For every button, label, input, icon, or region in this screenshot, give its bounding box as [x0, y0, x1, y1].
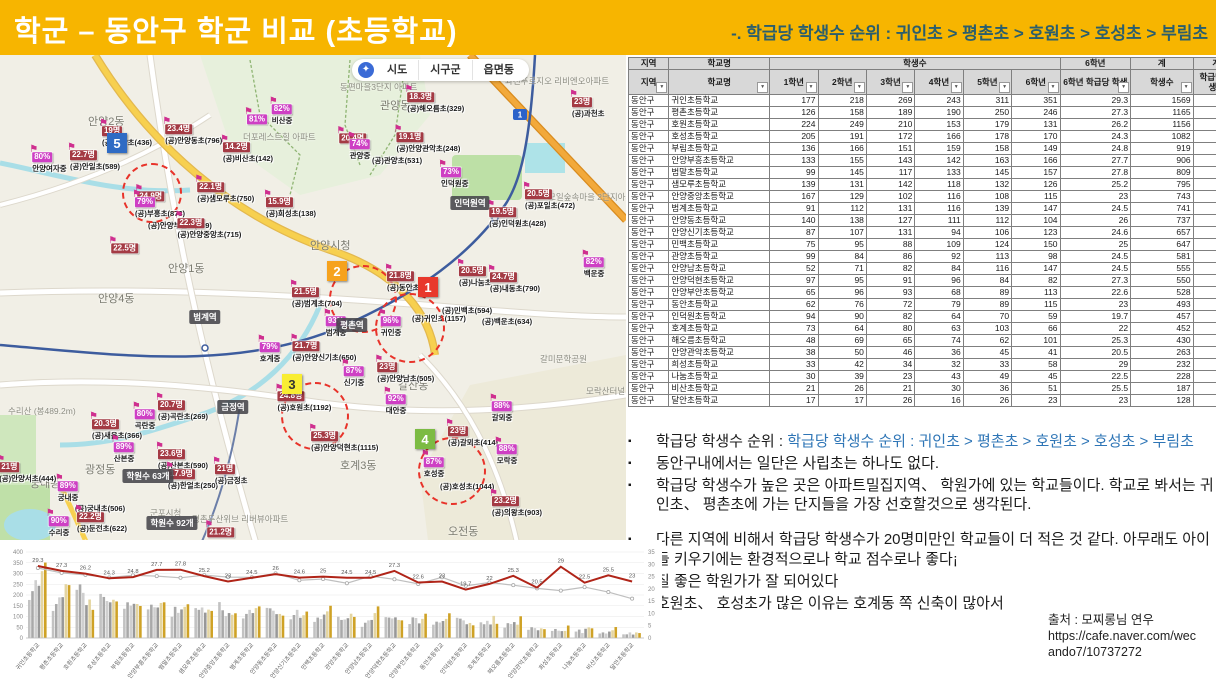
note-item: 질 좋은 학원가가 잘 되어있다: [628, 572, 1214, 592]
marker-school-name: 관양중: [350, 150, 371, 161]
cell-value: 246: [1012, 107, 1060, 119]
filter-button[interactable]: ▼: [1181, 82, 1192, 93]
map-marker[interactable]: ⚑23.4명(공)안양동초(796): [165, 118, 222, 146]
cell-value: 51: [1012, 383, 1060, 395]
header-cell: 4학년▼: [915, 70, 963, 95]
bar-2학년: [364, 623, 367, 638]
marker-school-name: (공)내동초(790): [490, 283, 540, 294]
cell-value: 84: [963, 275, 1011, 287]
cell-value: 26.2: [1060, 119, 1131, 131]
school-table-grid: 지역학교명학생수6학년계계지역▼학교명▼1학년▼2학년▼3학년▼4학년▼5학년▼…: [628, 57, 1216, 407]
bar-1학년: [622, 634, 625, 638]
filter-button[interactable]: ▼: [1048, 82, 1059, 93]
x-axis-label: 동안초등학교: [418, 641, 446, 672]
cell-value: 151: [866, 143, 914, 155]
bar-4학년: [632, 635, 635, 638]
map-marker[interactable]: ⚑92%대안중: [386, 388, 407, 416]
header-cell: 지역▼: [629, 70, 669, 95]
cell-value: 123: [1012, 227, 1060, 239]
marker-value: 23.2명: [492, 496, 519, 506]
bar-1학년: [361, 627, 364, 638]
data-label: 25.5: [603, 567, 614, 573]
map-control-1[interactable]: 시구군: [418, 60, 471, 80]
marker-value: 21.7명: [292, 341, 319, 351]
map-control-2[interactable]: 읍면동: [472, 60, 525, 80]
cell-value: 457: [1131, 311, 1194, 323]
map-marker[interactable]: ⚑19.1명(공)안양관악초(248): [396, 126, 460, 154]
line-marker: [298, 579, 301, 582]
cell-value: 647: [1131, 239, 1194, 251]
cell-value: 147: [1012, 263, 1060, 275]
bar-4학년: [347, 618, 350, 638]
cell-value: 210: [866, 119, 914, 131]
filter-button[interactable]: ▼: [1118, 82, 1129, 93]
bar-5학년: [587, 627, 590, 638]
bar-3학년: [58, 597, 61, 638]
cell-value: 1082: [1131, 131, 1194, 143]
map-marker[interactable]: ⚑89%궁내중: [58, 475, 79, 503]
data-label: 25.2: [199, 568, 210, 574]
cell-value: 145: [818, 167, 866, 179]
cell-value: 68: [915, 287, 963, 299]
cell-value: 30: [915, 383, 963, 395]
marker-value: 82%: [584, 257, 604, 267]
marker-school-name: (공)안양서초(444): [0, 473, 56, 484]
bar-2학년: [126, 602, 129, 638]
cell-school-name: 부림초등학교: [669, 143, 770, 155]
map-marker[interactable]: ⚑80%안양여자중: [32, 146, 66, 174]
table-row: 동안구안양덕현초등학교97959196848227.355023.9: [629, 275, 1216, 287]
cell-value: 24.6: [1193, 131, 1216, 143]
data-label: 24.6: [294, 570, 305, 576]
bar-4학년: [608, 632, 611, 638]
map-marker[interactable]: ⚑23명(공)안양남초(505): [377, 356, 434, 384]
bar-2학년: [625, 634, 628, 638]
cell-value: 21: [770, 383, 818, 395]
cell-value: 38: [770, 347, 818, 359]
left-axis-tick: 100: [13, 615, 24, 621]
data-label: 24.8: [127, 569, 138, 575]
bar-1학년: [456, 618, 459, 638]
map-marker[interactable]: ⚑88%갈뫼중: [492, 395, 513, 423]
cell-value: 24.8: [1060, 143, 1131, 155]
bar-5학년: [65, 584, 68, 638]
bar-4학년: [323, 615, 326, 638]
marker-value: 23명: [448, 426, 468, 436]
right-axis-tick: 35: [648, 550, 655, 556]
table-row: 동안구호원초등학교22424921015317913126.2115625.7: [629, 119, 1216, 131]
line-marker: [393, 578, 396, 581]
map-marker[interactable]: ⚑79%호계중: [260, 336, 281, 364]
bar-4학년: [465, 624, 468, 638]
map-marker[interactable]: ⚑21명(공)금정초: [215, 458, 248, 486]
cell-region: 동안구: [629, 215, 669, 227]
header-group-cell: 학교명: [669, 58, 770, 70]
cell-value: 25: [1060, 239, 1131, 251]
filter-button[interactable]: ▼: [656, 82, 667, 93]
marker-school-name: 수리중: [49, 527, 70, 538]
header-cell-label: 3학년: [880, 77, 900, 87]
bar-3학년: [177, 613, 180, 638]
map-marker[interactable]: ⚑23.2명(공)의왕초(903): [492, 490, 542, 518]
cell-region: 동안구: [629, 323, 669, 335]
map-place-label: 관양동: [380, 97, 410, 113]
bar-6학년: [472, 625, 475, 638]
note-bullet: ▪: [628, 476, 656, 516]
map-marker[interactable]: ⚑87%신기중: [344, 360, 365, 388]
map-marker[interactable]: ⚑15.9명(공)희성초(138): [266, 191, 316, 219]
header-group-cell: 6학년: [1060, 58, 1131, 70]
bar-3학년: [296, 610, 299, 638]
note-item: 호원초、 호성초가 많은 이유는 호계동 쪽 신축이 많아서: [628, 594, 1214, 614]
data-label: 25.3: [508, 568, 519, 574]
map-marker[interactable]: ⚑22.1명(공)샘모루초(750): [197, 176, 254, 204]
table-row: 동안구안양관악초등학교38504636454120.526320.2: [629, 347, 1216, 359]
map-marker[interactable]: ⚑22.3명(공)안양중앙초(715): [177, 212, 241, 240]
table-header-row: 지역▼학교명▼1학년▼2학년▼3학년▼4학년▼5학년▼6학년▼6학년 학급당 학…: [629, 70, 1216, 95]
cell-value: 131: [866, 227, 914, 239]
cell-value: 29.3: [1060, 95, 1131, 107]
header-cell-label: 학급당 학생수: [1199, 72, 1216, 92]
marker-school-name: 호계중: [260, 353, 281, 364]
table-row: 동안구동안초등학교62767279891152349324.7: [629, 299, 1216, 311]
cell-value: 45: [1012, 371, 1060, 383]
cell-value: 20.5: [1060, 347, 1131, 359]
cell-school-name: 달안초등학교: [669, 395, 770, 407]
bar-2학년: [79, 584, 82, 638]
cell-value: 250: [963, 107, 1011, 119]
marker-value: 88%: [497, 444, 517, 454]
data-label: 23: [225, 573, 231, 579]
cell-value: 25.2: [1193, 155, 1216, 167]
map-marker[interactable]: ⚑74%관양중: [350, 133, 371, 161]
map-marker[interactable]: ⚑19.5명(공)인덕원초(428): [489, 201, 546, 229]
map-place-label: 광정동: [85, 461, 115, 477]
cell-value: 24: [1193, 239, 1216, 251]
table-row: 동안구범말초등학교9914511713314515727.880924.5: [629, 167, 1216, 179]
bar-4학년: [61, 597, 64, 638]
x-axis-label: 호성초등학교: [85, 641, 113, 672]
map-marker[interactable]: ⚑14.2명(공)비산초(142): [223, 136, 273, 164]
marker-school-name: (공)동안초: [387, 282, 420, 293]
marker-value: 21.2명: [207, 527, 234, 537]
cell-value: 167: [770, 191, 818, 203]
bar-5학년: [302, 615, 305, 638]
bar-3학년: [415, 618, 418, 638]
map-marker[interactable]: ⚑17.9명(공)한얼초(250): [168, 463, 218, 491]
bar-4학년: [204, 613, 207, 638]
school-name-label: (공)민백초(594): [442, 305, 492, 316]
marker-value: 73%: [441, 167, 461, 177]
map-marker[interactable]: ⚑18.3명(공)해오름초(329): [407, 86, 464, 114]
header-group-cell: 계: [1131, 58, 1194, 70]
marker-value: 20.5명: [459, 266, 486, 276]
bar-2학년: [198, 610, 201, 638]
x-axis-label: 범계초등학교: [228, 641, 256, 672]
cell-value: 23.5: [1193, 227, 1216, 239]
table-row: 동안구관양초등학교998486921139824.558122.3: [629, 251, 1216, 263]
filter-button[interactable]: ▼: [757, 82, 768, 93]
marker-value: 19.5명: [489, 207, 516, 217]
bar-3학년: [391, 618, 394, 638]
x-axis-label: 평촌초등학교: [38, 641, 66, 672]
line-marker: [631, 597, 634, 600]
map-marker[interactable]: ⚑22.2명(공)둔전초(622): [77, 506, 127, 534]
x-axis-label: 관양초등학교: [323, 641, 351, 672]
bar-2학년: [554, 629, 557, 638]
cell-value: 94: [770, 311, 818, 323]
map-marker[interactable]: ⚑88%모락중: [497, 438, 518, 466]
cell-value: 96: [818, 287, 866, 299]
marker-value: 23.4명: [165, 124, 192, 134]
cell-value: 172: [866, 131, 914, 143]
map-marker[interactable]: ⚑25.3명(공)안양덕현초(1115): [311, 425, 378, 453]
cell-value: 30: [770, 371, 818, 383]
cell-value: 58: [1012, 359, 1060, 371]
data-label: 26.2: [80, 566, 91, 572]
marker-school-name: (공)곡란초(269): [158, 411, 208, 422]
map-marker[interactable]: ⚑96%귀인중: [381, 310, 402, 338]
line-marker: [607, 590, 610, 593]
filter-button[interactable]: ▼: [902, 82, 913, 93]
bar-3학년: [438, 623, 441, 638]
cell-region: 동안구: [629, 239, 669, 251]
header-cell-label: 지역: [641, 77, 657, 87]
header-cell-label: 학교명: [707, 77, 730, 87]
bar-4학년: [252, 613, 255, 638]
map-marker[interactable]: ⚑22.5명: [111, 237, 138, 253]
bar-5학년: [278, 614, 281, 638]
data-label: 24.3: [104, 570, 115, 576]
cell-value: 92: [915, 251, 963, 263]
data-label: 20.5: [531, 580, 542, 586]
cell-region: 동안구: [629, 287, 669, 299]
map-marker[interactable]: ⚑73%인덕원중: [441, 161, 469, 189]
ranking-subtitle: -. 학급당 학생수 순위 : 귀인초 > 평촌초 > 호원초 > 호성초 > …: [731, 19, 1208, 44]
marker-school-name: (공)안양남초(505): [377, 373, 434, 384]
cell-value: 82: [866, 263, 914, 275]
marker-value: 89%: [58, 481, 78, 491]
cell-value: 149: [1012, 143, 1060, 155]
map-marker[interactable]: ⚑89%산본중: [114, 436, 135, 464]
cell-value: 22.6: [1060, 287, 1131, 299]
marker-school-name: (공)호원초(1192): [277, 402, 331, 413]
bar-1학년: [171, 617, 174, 638]
map-marker[interactable]: ⚑21.5명(공)범계초(704): [292, 281, 342, 309]
cell-value: 249: [818, 119, 866, 131]
cell-value: 112: [818, 203, 866, 215]
marker-value: 18.3명: [407, 92, 434, 102]
cell-value: 23: [1012, 395, 1060, 407]
table-row: 동안구해오름초등학교486965746210125.343021.5: [629, 335, 1216, 347]
filter-button[interactable]: ▼: [999, 82, 1010, 93]
marker-school-name: (공)둔전초(622): [77, 523, 127, 534]
map-annotation-box: 인덕원역: [450, 196, 489, 210]
map-marker[interactable]: ⚑23명(공)과천초: [572, 91, 605, 119]
header-cell: 학생수▼: [1131, 70, 1194, 95]
map-marker[interactable]: ⚑21.2명: [207, 521, 234, 537]
bar-6학년: [567, 626, 570, 638]
cell-value: 99: [770, 251, 818, 263]
cell-value: 187: [1131, 383, 1194, 395]
left-axis-tick: 200: [13, 593, 24, 599]
bar-3학년: [510, 624, 513, 638]
cell-value: 74: [915, 335, 963, 347]
cell-value: 737: [1131, 215, 1194, 227]
map-marker[interactable]: ⚑82%백운중: [584, 251, 605, 279]
cell-value: 63: [915, 323, 963, 335]
bar-2학년: [174, 607, 177, 638]
data-label: 22.5: [579, 575, 590, 581]
bar-6학년: [377, 606, 380, 638]
cell-value: 163: [963, 155, 1011, 167]
bar-5학년: [469, 623, 472, 638]
cell-value: 36: [963, 383, 1011, 395]
map-marker[interactable]: ⚑82%비산중: [272, 98, 293, 126]
marker-value: 22.1명: [197, 182, 224, 192]
table-row: 동안구평촌초등학교12615818919025024627.3116526.5: [629, 107, 1216, 119]
cell-value: 26: [866, 395, 914, 407]
marker-school-name: (공)안양중앙초(715): [177, 229, 241, 240]
filter-button[interactable]: ▼: [806, 82, 817, 93]
cell-value: 555: [1131, 263, 1194, 275]
marker-school-name: 모락중: [497, 455, 518, 466]
cell-value: 140: [770, 215, 818, 227]
line-marker: [179, 576, 182, 579]
bar-6학년: [234, 613, 237, 638]
cell-school-name: 안양덕현초등학교: [669, 275, 770, 287]
map-marker[interactable]: ⚑87%호성중: [424, 451, 445, 479]
cell-value: 64: [818, 323, 866, 335]
marker-value: 87%: [344, 366, 364, 376]
cell-value: 113: [1012, 287, 1060, 299]
map-marker[interactable]: ⚑20.7명(공)곡란초(269): [158, 394, 208, 422]
cell-value: 657: [1131, 227, 1194, 239]
cell-value: 139: [770, 179, 818, 191]
filter-button[interactable]: ▼: [854, 82, 865, 93]
table-row: 동안구부림초등학교13616615115915814924.891925.5: [629, 143, 1216, 155]
bar-3학년: [82, 593, 85, 638]
cell-value: 59: [1012, 311, 1060, 323]
bar-6학년: [139, 606, 142, 638]
cell-value: 82: [866, 311, 914, 323]
map-control-0[interactable]: 시도: [376, 60, 418, 80]
cell-value: 158: [818, 107, 866, 119]
bar-4학년: [299, 618, 302, 638]
bar-4학년: [133, 604, 136, 638]
cell-value: 24.5: [1060, 263, 1131, 275]
cell-value: 147: [1012, 203, 1060, 215]
marker-value: 74%: [350, 139, 370, 149]
cell-value: 62: [770, 299, 818, 311]
map-marker[interactable]: ⚑90%수리중: [49, 510, 70, 538]
map-marker[interactable]: ⚑24.7명(공)내동초(790): [490, 266, 540, 294]
cell-value: 18.7: [1193, 383, 1216, 395]
cell-value: 809: [1131, 167, 1194, 179]
marker-school-name: 귀인중: [381, 327, 402, 338]
bar-2학년: [269, 608, 272, 638]
cell-school-name: 안양중앙초등학교: [669, 191, 770, 203]
rank-badge-2: 2: [327, 261, 347, 281]
bar-4학년: [156, 607, 159, 638]
header-cell-label: 2학년: [832, 77, 852, 87]
data-label: 24.5: [365, 570, 376, 576]
map-marker[interactable]: ⚑23명(공)갈뫼초(414): [448, 420, 498, 448]
line-marker: [322, 577, 325, 580]
cell-value: 75: [770, 239, 818, 251]
cell-region: 동안구: [629, 191, 669, 203]
bar-4학년: [228, 613, 231, 638]
cell-region: 동안구: [629, 167, 669, 179]
cell-value: 80: [866, 323, 914, 335]
cell-value: 62: [963, 335, 1011, 347]
header-cell-label: 5학년: [977, 77, 997, 87]
marker-value: 20.7명: [158, 400, 185, 410]
cell-region: 동안구: [629, 203, 669, 215]
marker-value: 21.8명: [387, 271, 414, 281]
bar-6학년: [258, 606, 261, 638]
data-label: 26: [272, 566, 278, 572]
marker-school-name: (공)안일초(589): [70, 161, 120, 172]
bar-1학년: [242, 618, 245, 638]
cell-value: 21.2: [1193, 311, 1216, 323]
cell-value: 743: [1131, 191, 1194, 203]
cell-value: 129: [818, 191, 866, 203]
cell-school-name: 호계초등학교: [669, 323, 770, 335]
bar-6학년: [519, 616, 522, 638]
cell-value: 218: [818, 95, 866, 107]
bar-1학년: [598, 633, 601, 638]
map-panel[interactable]: 1 ✦ 시도시구군읍면동 안양2동관양동안양1동안양4동갈산동호계3동궁내동광정…: [0, 55, 626, 557]
filter-button[interactable]: ▼: [951, 82, 962, 93]
header-cell-label: 4학년: [929, 77, 949, 87]
map-marker[interactable]: ⚑21.8명(공)동안초: [387, 265, 420, 293]
cell-value: 27.3: [1060, 275, 1131, 287]
map-marker[interactable]: ⚑21명(공)안양서초(444): [0, 456, 56, 484]
cell-value: 166: [1012, 155, 1060, 167]
bar-3학년: [629, 632, 632, 638]
header-group-cell: 학생수: [770, 58, 1060, 70]
cell-value: 86: [866, 251, 914, 263]
rank-badge-4: 4: [415, 429, 435, 449]
cell-value: 159: [915, 143, 963, 155]
cell-school-name: 범계초등학교: [669, 203, 770, 215]
map-marker[interactable]: ⚑81%: [247, 108, 267, 124]
bar-4학년: [513, 622, 516, 638]
cell-value: 24.8: [1193, 191, 1216, 203]
cell-value: 49: [963, 371, 1011, 383]
marker-school-name: 호성중: [424, 468, 445, 479]
note-text: 호원초、 호성초가 많은 이유는 호계동 쪽 신축이 많아서: [656, 594, 1004, 614]
cell-school-name: 호원초등학교: [669, 119, 770, 131]
cell-value: 116: [915, 203, 963, 215]
map-marker[interactable]: ⚑80%곡란중: [135, 403, 156, 431]
table-row: 동안구호계초등학교73648063103662245222.6: [629, 323, 1216, 335]
notes: ▪학급당 학생수 순위 : 학급당 학생수 순위 : 귀인초 > 평촌초 > 호…: [628, 432, 1214, 615]
compass-icon[interactable]: ✦: [358, 62, 374, 78]
left-axis-tick: 50: [16, 625, 23, 631]
cell-region: 동안구: [629, 251, 669, 263]
cell-value: 133: [915, 167, 963, 179]
cell-value: 1569: [1131, 95, 1194, 107]
bar-6학년: [591, 628, 594, 638]
bar-2학년: [221, 610, 224, 638]
cell-region: 동안구: [629, 107, 669, 119]
cell-value: 22: [1193, 287, 1216, 299]
cell-value: 23: [1060, 395, 1131, 407]
cell-value: 581: [1131, 251, 1194, 263]
cell-value: 17: [818, 395, 866, 407]
